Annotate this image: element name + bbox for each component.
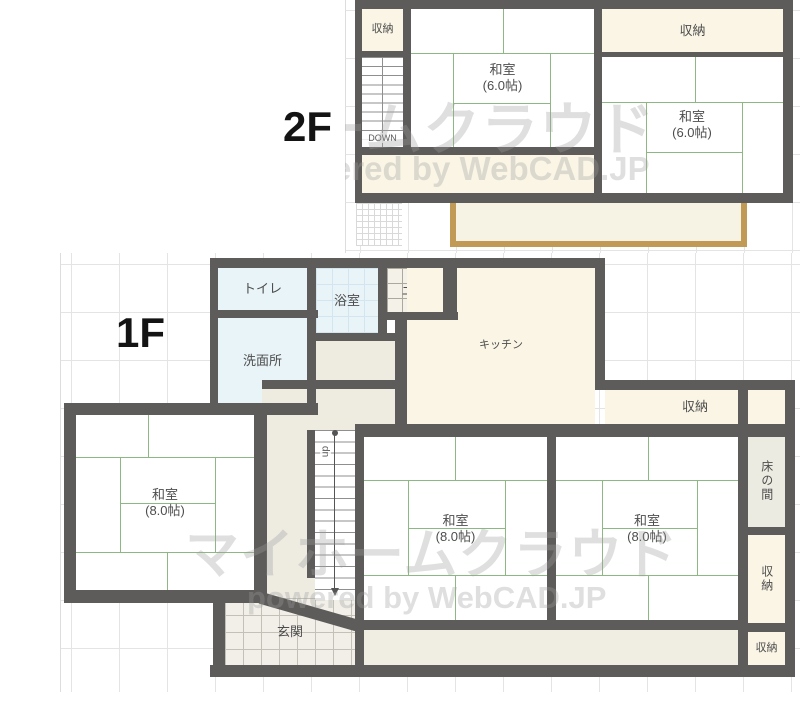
stairs-direction-arrow-icon [331,588,339,596]
wall [355,620,748,630]
room-label: 浴室 [316,268,378,333]
room-label: 収納 [748,535,785,623]
wall [355,0,362,203]
wall [210,665,795,677]
balcony-2f [450,203,747,247]
wall [307,268,316,415]
wall [210,258,605,268]
room-1f-tokonoma: 床の間 [748,435,785,527]
wall [601,52,783,57]
floor-label-2f: 2F [283,103,332,151]
room-size: (8.0帖) [436,529,476,545]
room-name: 和室 [489,62,515,78]
wall [64,590,265,603]
room-size: (6.0帖) [483,78,523,94]
stairs-direction-line [334,434,335,592]
room-1f-bath: 浴室 [316,268,378,333]
room-label: 和室 (6.0帖) [411,9,594,147]
room-2f-washitsu-left: 和室 (6.0帖) [411,9,594,147]
wall [355,0,793,9]
wall [355,193,793,203]
wall [595,258,605,390]
wall [748,623,785,632]
room-1f-washitsu-mid: 和室 (8.0帖) [364,437,547,620]
room-size: (6.0帖) [672,125,712,141]
wall [395,312,407,428]
wall [307,430,315,578]
room-1f-washitsu-left: 和室 (8.0帖) [76,415,254,590]
room-label: 収納 [362,9,403,51]
wall [262,380,407,389]
wall [595,380,795,390]
wall [378,258,387,341]
wall [355,51,403,57]
porch-tile-2f [356,203,402,246]
wall [785,380,795,677]
room-label: キッチン [407,268,595,424]
room-label: 床の間 [748,435,785,527]
stairs-down-label: DOWN [362,133,403,143]
stairs-1f: up [315,430,355,600]
wall [443,258,457,320]
room-2f-lower-corridor [362,155,594,193]
room-1f-washitsu-right: 和室 (8.0帖) [556,437,738,620]
room-name: 和室 [152,487,178,503]
room-size: (8.0帖) [145,503,185,519]
wall [594,0,602,203]
room-1f-closet-top: 収納 [605,390,785,424]
wall [355,147,594,155]
wall [738,390,748,677]
room-label: トイレ [218,268,307,310]
room-label: 和室 (8.0帖) [76,415,254,590]
room-2f-closet-left: 収納 [362,9,403,51]
room-label: 和室 (8.0帖) [364,437,547,620]
room-2f-closet-right: 収納 [602,9,783,52]
room-size: (8.0帖) [627,529,667,545]
room-1f-corridor-small [316,341,395,380]
floor-label-1f: 1F [116,309,165,357]
room-2f-washitsu-right: 和室 (6.0帖) [601,57,783,193]
wall [64,403,76,603]
room-label: 和室 (8.0帖) [556,437,738,620]
wall [403,0,411,155]
stairs-start-dot [332,430,338,436]
stairs-up-label: up [320,445,331,458]
wall [64,403,318,415]
wall [213,592,225,677]
room-1f-closet-bottom: 収納 [748,632,785,665]
wall [210,310,318,318]
room-label: 収納 [748,632,785,665]
room-label: 収納 [602,9,783,52]
room-1f-corridor-bottom [364,630,738,665]
room-1f-kitchen: キッチン [407,268,595,424]
wall [547,424,556,630]
room-label: 和室 (6.0帖) [601,57,783,193]
room-name: 和室 [634,513,660,529]
stairs-2f: DOWN [362,57,403,148]
wall [254,403,267,603]
room-label: 収納 [605,390,785,424]
room-1f-closet-mid: 収納 [748,535,785,623]
floorplan-canvas: 2F 1F 収納 DOWN 収納 和室 (6.0帖) 和室 (6.0帖) [0,0,800,723]
wall [748,527,785,535]
wall [355,424,795,437]
wall [210,258,218,415]
room-name: 和室 [442,513,468,529]
wall [783,0,793,203]
room-1f-toilet: トイレ [218,268,307,310]
room-name: 和室 [679,109,705,125]
